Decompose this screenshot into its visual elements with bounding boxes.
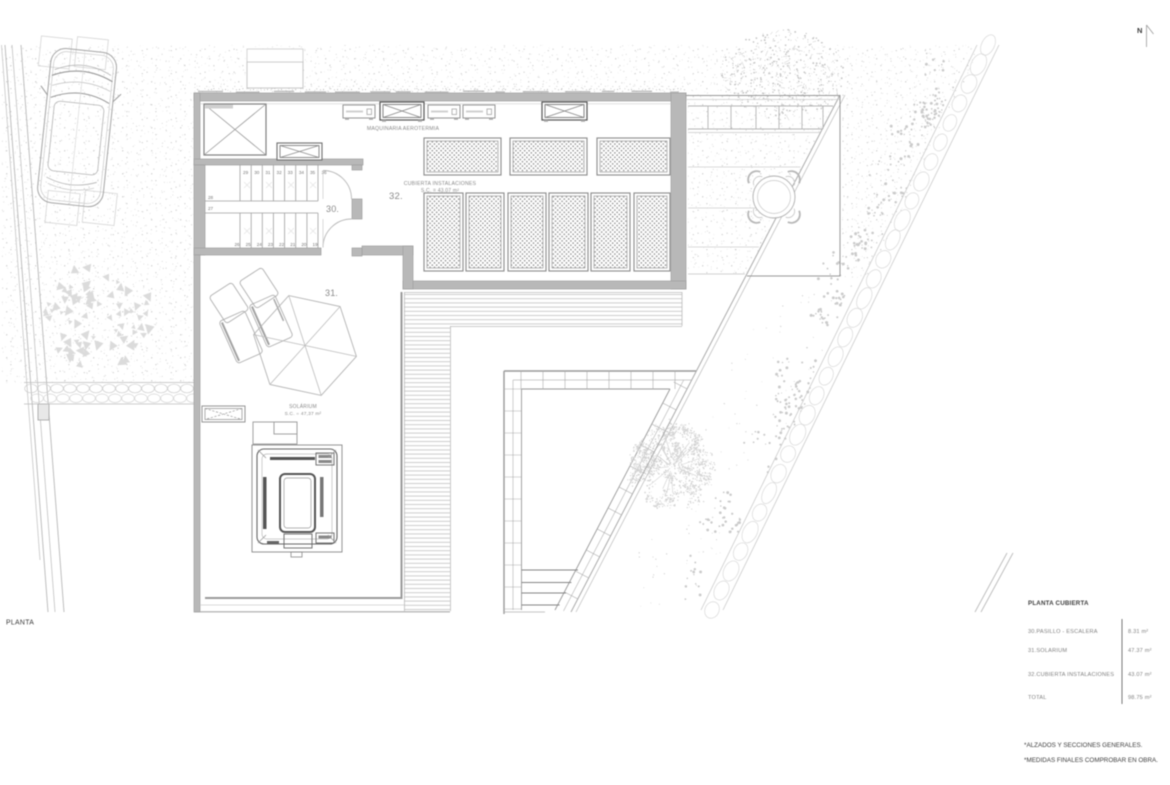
- svg-text:31.: 31.: [325, 288, 338, 298]
- svg-text:31: 31: [265, 170, 271, 175]
- svg-text:43.07 m²: 43.07 m²: [1128, 672, 1152, 678]
- svg-text:21: 21: [290, 242, 296, 247]
- svg-text:47.37 m²: 47.37 m²: [1128, 648, 1152, 654]
- svg-text:CUBIERTA INSTALACIONES: CUBIERTA INSTALACIONES: [404, 181, 477, 187]
- svg-text:24: 24: [257, 242, 263, 247]
- svg-text:35: 35: [310, 170, 316, 175]
- svg-text:32.CUBIERTA INSTALACIONES: 32.CUBIERTA INSTALACIONES: [1028, 672, 1114, 678]
- svg-text:26: 26: [234, 242, 240, 247]
- svg-text:34: 34: [299, 170, 305, 175]
- svg-text:31.SOLARIUM: 31.SOLARIUM: [1028, 648, 1067, 654]
- svg-text:*ALZADOS Y SECCIONES GENERALES: *ALZADOS Y SECCIONES GENERALES.: [1024, 742, 1143, 749]
- svg-text:28: 28: [208, 195, 214, 200]
- svg-text:98.75 m²: 98.75 m²: [1128, 695, 1152, 701]
- svg-text:N: N: [1137, 26, 1143, 35]
- svg-text:*MEDIDAS FINALES COMPROBAR EN: *MEDIDAS FINALES COMPROBAR EN OBRA.: [1024, 757, 1158, 764]
- svg-text:PLANTA: PLANTA: [6, 620, 34, 627]
- svg-text:25: 25: [246, 242, 252, 247]
- svg-text:32.: 32.: [389, 191, 403, 202]
- svg-text:20: 20: [301, 242, 307, 247]
- svg-text:S.C. = 43.07 m²: S.C. = 43.07 m²: [421, 188, 459, 194]
- svg-text:27: 27: [208, 206, 214, 211]
- svg-text:30.: 30.: [326, 204, 339, 214]
- svg-text:23: 23: [268, 242, 274, 247]
- svg-text:8.31 m²: 8.31 m²: [1128, 629, 1148, 635]
- svg-text:22: 22: [279, 242, 285, 247]
- svg-text:TOTAL: TOTAL: [1028, 695, 1047, 701]
- svg-text:SOLÁRIUM: SOLÁRIUM: [289, 403, 317, 410]
- svg-text:29: 29: [243, 170, 249, 175]
- svg-text:19: 19: [313, 242, 319, 247]
- svg-text:32: 32: [277, 170, 283, 175]
- svg-text:30.PASILLO - ESCALERA: 30.PASILLO - ESCALERA: [1028, 629, 1098, 635]
- svg-text:30: 30: [254, 170, 260, 175]
- svg-text:PLANTA CUBIERTA: PLANTA CUBIERTA: [1028, 600, 1089, 607]
- svg-text:S.C. = 47,37 m²: S.C. = 47,37 m²: [285, 411, 322, 417]
- svg-text:33: 33: [288, 170, 294, 175]
- svg-text:MAQUINARIA AEROTERMIA: MAQUINARIA AEROTERMIA: [367, 126, 440, 132]
